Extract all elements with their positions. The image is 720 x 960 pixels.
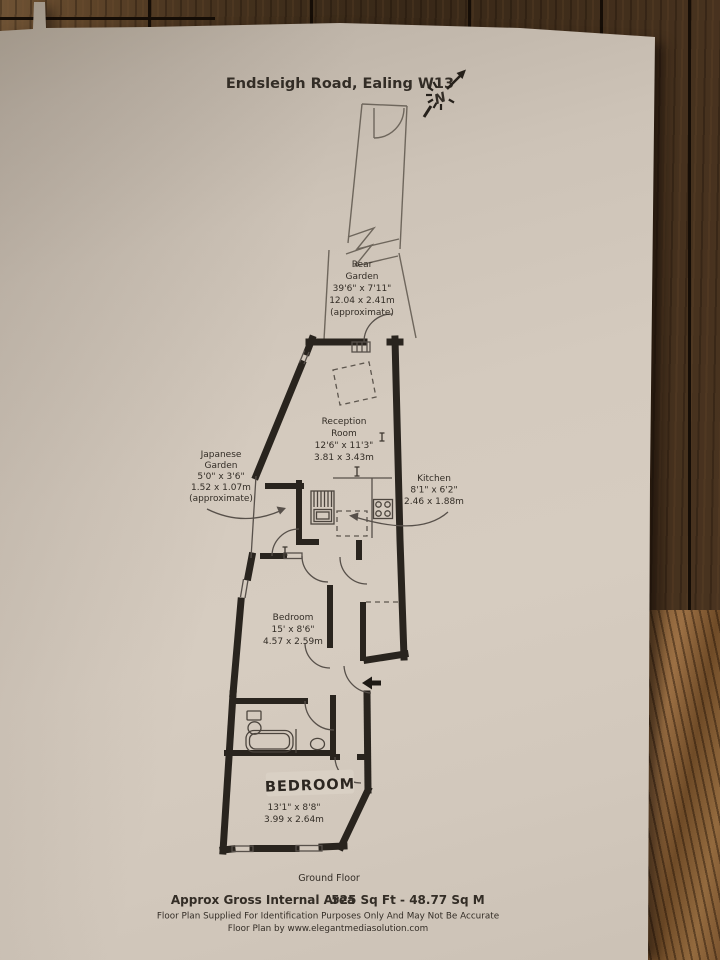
svg-text:(approximate): (approximate): [189, 494, 253, 504]
credit-text: Floor Plan by www.elegantmediasolution.c…: [228, 924, 428, 934]
basin: [311, 738, 325, 749]
skylight-dashed: [333, 362, 376, 405]
side-window: [241, 579, 249, 598]
svg-text:(approximate): (approximate): [330, 308, 394, 318]
bay-window: [296, 846, 322, 852]
photo-of-floor-plan: { "title": "Endsleigh Road, Ealing W13",…: [0, 0, 720, 960]
reception-dims-ft: 12'6" x 11'3": [315, 441, 374, 451]
kitchen-fixtures: [311, 478, 393, 538]
bathroom-fixtures: [246, 711, 325, 753]
reception-label: Reception Room 12'6" x 11'3" 3.81 x 3.43…: [314, 417, 374, 463]
bedroom2-handwritten-name: BEDROOM: [265, 776, 356, 795]
rear-garden-dims-ft: 39'6" x 7'11": [333, 284, 392, 294]
footer: Ground Floor Approx Gross Internal Area …: [157, 873, 499, 934]
bedroom2-label: BEDROOM 13'1" x 8'8" 3.99 x 2.64m: [264, 769, 355, 825]
japanese-garden-dims-ft: 5'0" x 3'6": [197, 472, 244, 482]
kitchen-name: Kitchen: [417, 474, 451, 484]
bedroom-door-arc: [302, 556, 328, 582]
break-line: [348, 228, 399, 249]
bathtub: [246, 731, 293, 753]
svg-text:Garden: Garden: [205, 461, 238, 471]
floor-plan-drawing: Endsleigh Road, Ealing W13 N: [0, 0, 720, 960]
bedroom1-label: Bedroom 15' x 8'6" 4.57 x 2.59m: [263, 613, 323, 647]
kitchen-dims-ft: 8'1" x 6'2": [410, 486, 457, 496]
kitchen-label: Kitchen 8'1" x 6'2" 2.46 x 1.88m: [404, 474, 464, 507]
bedroom2-dims-m: 3.99 x 2.64m: [264, 815, 324, 825]
hob: [374, 500, 393, 519]
rear-garden-label: Rear Garden 39'6" x 7'11" 12.04 x 2.41m …: [329, 260, 395, 318]
page-title: Endsleigh Road, Ealing W13: [226, 76, 454, 92]
rear-garden-dims-m: 12.04 x 2.41m: [329, 296, 395, 306]
bathroom-door-arc: [305, 701, 334, 730]
bedroom1-dims-ft: 15' x 8'6": [271, 625, 314, 635]
reception-dims-m: 3.81 x 3.43m: [314, 453, 374, 463]
floor-label: Ground Floor: [298, 873, 360, 884]
area-label: Approx Gross Internal Area: [171, 893, 355, 907]
garden-gate-arc: [374, 108, 404, 138]
japanese-garden-label: Japanese Garden 5'0" x 3'6" 1.52 x 1.07m…: [189, 450, 253, 504]
courtyard-edge: [251, 476, 256, 558]
japanese-garden-arrow: [207, 509, 280, 519]
area-value: 525 Sq Ft - 48.77 Sq M: [331, 893, 484, 907]
garden-door-arc: [364, 314, 392, 342]
sink-unit: [311, 491, 334, 524]
japanese-garden-name: Japanese: [200, 450, 242, 460]
rear-garden-name: Rear: [352, 260, 373, 270]
reception-name: Reception: [322, 417, 367, 427]
counter-lines: [333, 478, 392, 538]
disclaimer-text: Floor Plan Supplied For Identification P…: [157, 912, 499, 922]
hall-door-arc: [340, 557, 367, 584]
bedroom2-dims-ft: 13'1" x 8'8": [268, 803, 321, 813]
svg-text:Room: Room: [331, 429, 357, 439]
bedroom1-dims-m: 4.57 x 2.59m: [263, 637, 323, 647]
kitchen-dims-m: 2.46 x 1.88m: [404, 497, 464, 507]
japanese-garden-dims-m: 1.52 x 1.07m: [191, 483, 251, 493]
entrance-door-arc: [344, 666, 371, 693]
svg-text:Garden: Garden: [346, 272, 379, 282]
bedroom1-name: Bedroom: [273, 613, 314, 623]
entrance-arrow-icon: [362, 677, 381, 690]
